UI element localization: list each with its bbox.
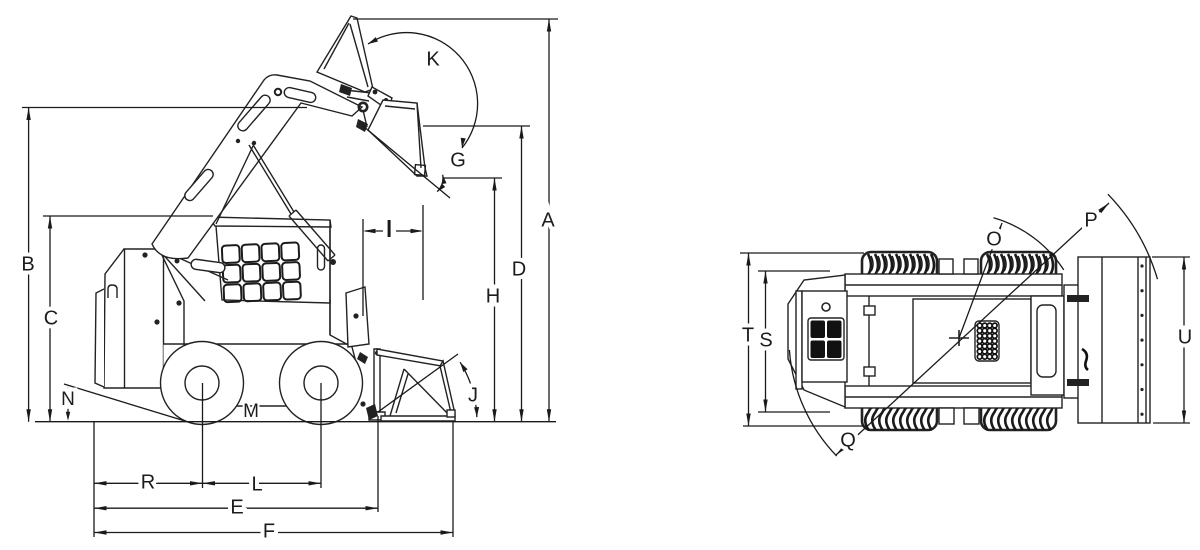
svg-text:N: N (61, 389, 75, 410)
svg-text:R: R (141, 471, 155, 493)
svg-text:J: J (468, 384, 478, 406)
svg-text:K: K (426, 48, 440, 70)
svg-text:M: M (243, 401, 259, 422)
svg-text:D: D (512, 258, 526, 280)
svg-text:S: S (759, 329, 772, 351)
svg-text:A: A (541, 209, 555, 231)
svg-text:H: H (486, 285, 500, 307)
svg-text:O: O (986, 228, 1002, 250)
svg-text:F: F (263, 520, 275, 542)
svg-text:G: G (450, 149, 466, 171)
svg-text:Q: Q (840, 429, 856, 451)
svg-text:P: P (1084, 209, 1097, 231)
svg-text:U: U (1178, 326, 1192, 348)
svg-text:L: L (251, 473, 262, 495)
svg-text:T: T (742, 324, 754, 346)
svg-text:E: E (230, 496, 243, 518)
svg-text:C: C (44, 307, 58, 329)
svg-text:B: B (21, 253, 34, 275)
